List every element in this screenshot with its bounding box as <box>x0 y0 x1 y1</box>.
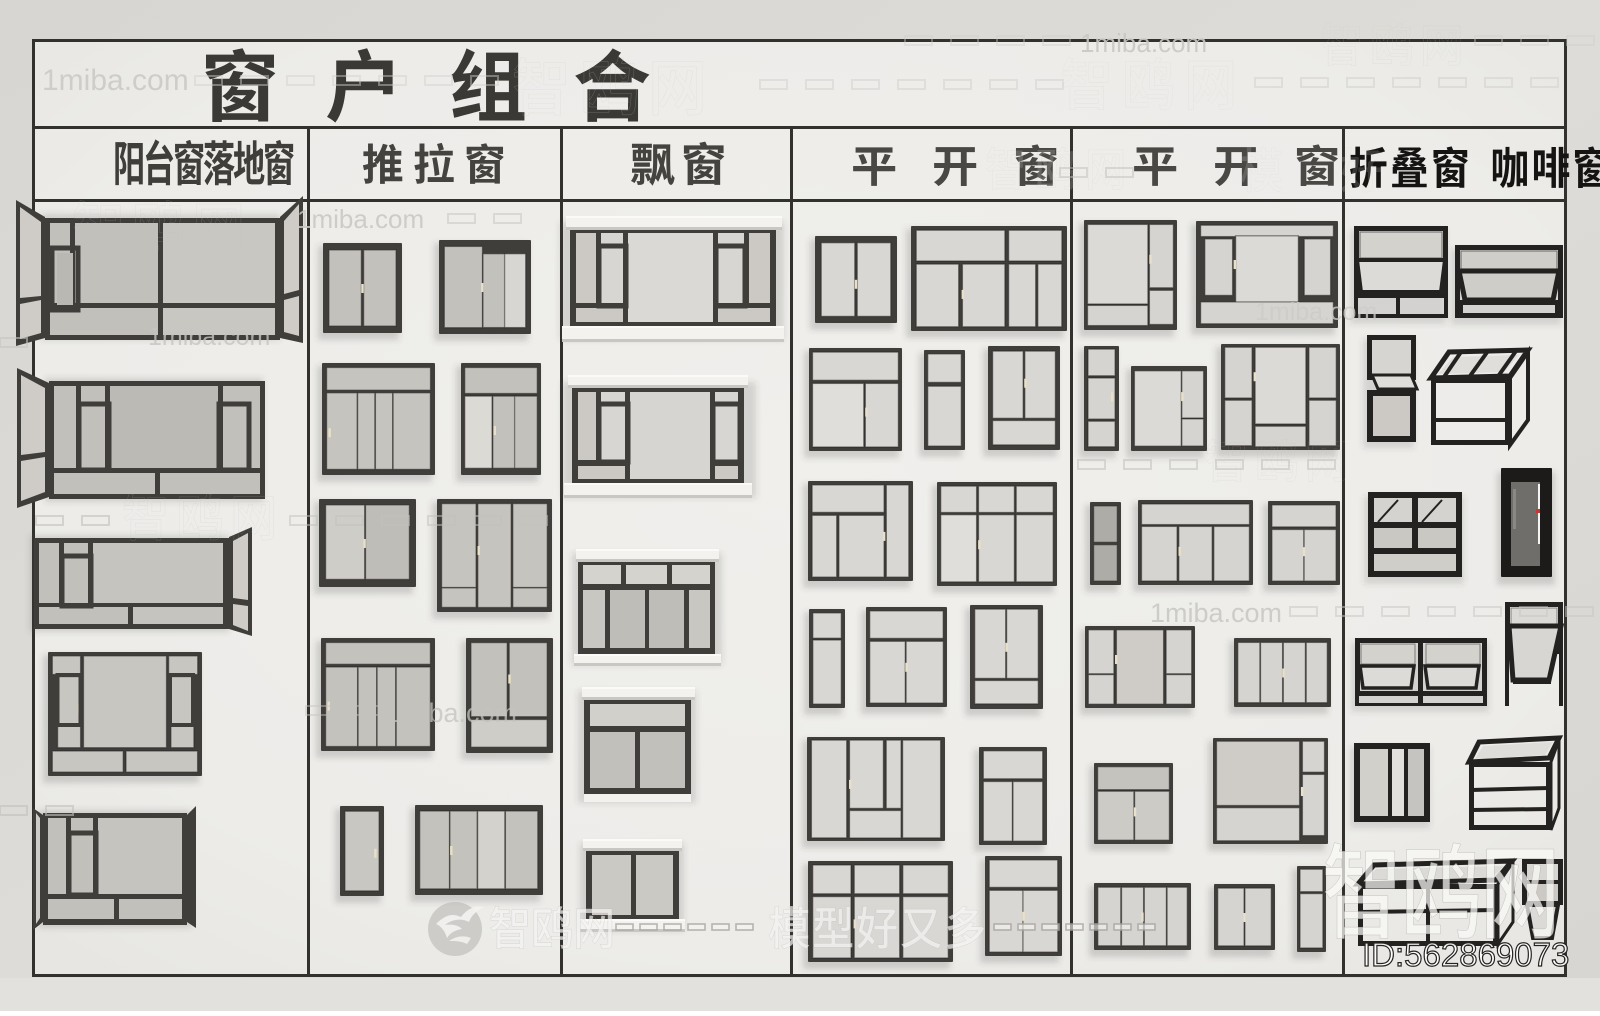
svg-text:1miba.com: 1miba.com <box>42 64 189 97</box>
svg-text:ID:562869073: ID:562869073 <box>1362 936 1569 973</box>
svg-text:1miba.com: 1miba.com <box>148 323 270 351</box>
svg-text:1miba.com: 1miba.com <box>385 698 517 728</box>
svg-text:1miba.com: 1miba.com <box>1255 298 1377 326</box>
svg-text:1miba.com: 1miba.com <box>1080 28 1207 58</box>
svg-text:1miba.com: 1miba.com <box>1150 598 1282 628</box>
svg-text:1miba.com: 1miba.com <box>297 204 424 234</box>
